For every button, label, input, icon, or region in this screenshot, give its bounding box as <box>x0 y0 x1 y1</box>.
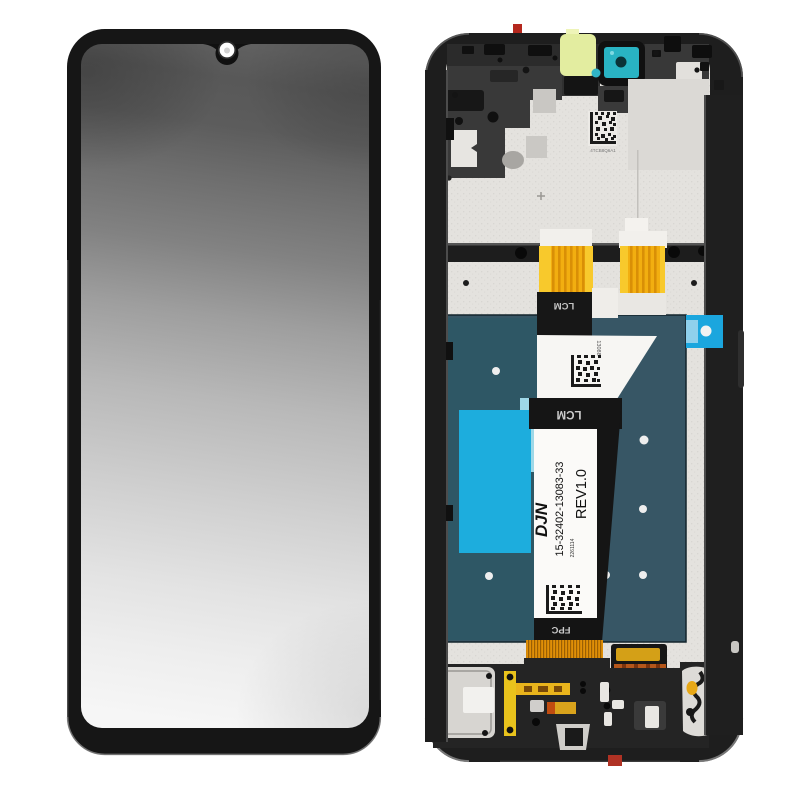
svg-text:LCM: LCM <box>554 300 575 311</box>
svg-text:13088: 13088 <box>595 340 601 355</box>
svg-text:LCM: LCM <box>557 408 582 420</box>
svg-text:DJN: DJN <box>532 502 551 537</box>
svg-text:4TCB8Q6A1: 4TCB8Q6A1 <box>590 148 616 153</box>
svg-text:2261114: 2261114 <box>570 538 576 557</box>
svg-text:FPC: FPC <box>551 624 570 635</box>
svg-text:15-32402-13083-33: 15-32402-13083-33 <box>554 462 566 557</box>
svg-text:REV1.0: REV1.0 <box>574 469 590 519</box>
